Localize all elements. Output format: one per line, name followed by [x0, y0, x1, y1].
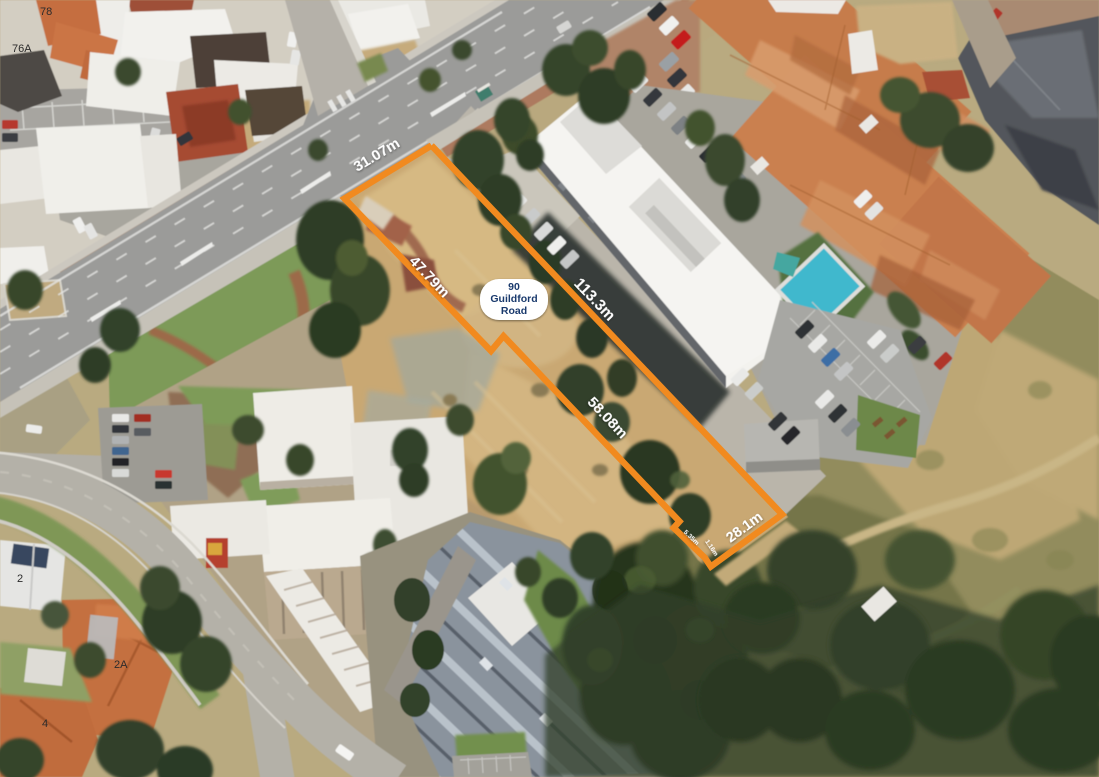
svg-text:2: 2	[17, 573, 23, 585]
svg-text:Road: Road	[501, 305, 527, 317]
svg-text:Guildford: Guildford	[490, 293, 537, 305]
svg-text:2A: 2A	[114, 659, 128, 671]
svg-text:78: 78	[40, 6, 52, 18]
svg-text:76A: 76A	[12, 43, 32, 55]
svg-text:90: 90	[508, 281, 520, 293]
svg-text:4: 4	[42, 718, 48, 730]
